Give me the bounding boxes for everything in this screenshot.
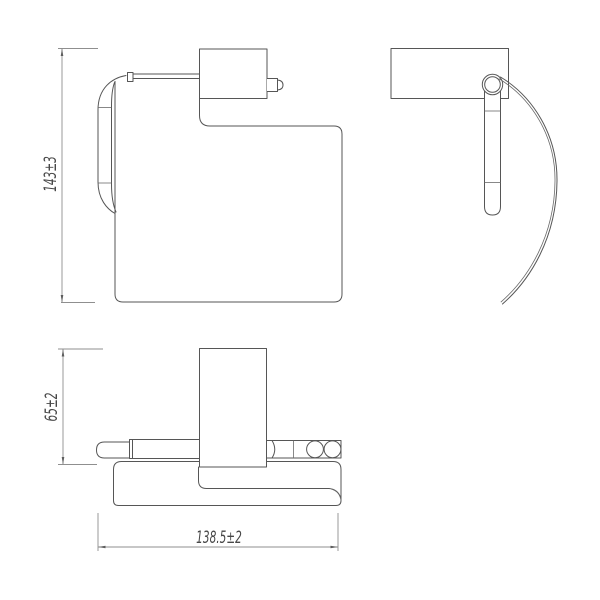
dimension-front-height: 143±3	[42, 49, 98, 303]
spindle-knob-cap	[278, 80, 284, 90]
dimension-top-depth: 65±2	[43, 349, 103, 465]
top-view: 65±2 138.5±2	[43, 349, 341, 552]
technical-drawing: 143±3	[0, 0, 600, 600]
rod-body-right	[267, 441, 342, 459]
dimension-label-height: 143±3	[42, 156, 61, 192]
dimension-label-depth: 65±2	[43, 393, 62, 422]
mount-block-front	[200, 49, 268, 99]
arrowhead-left	[98, 546, 106, 549]
cover-profile-inner	[499, 79, 555, 303]
base-plate-top	[114, 462, 342, 506]
side-view	[391, 49, 557, 305]
arrowhead-up	[62, 349, 65, 357]
arrowhead-down	[61, 295, 64, 303]
arrowhead-down	[62, 457, 65, 465]
rod-left-cap	[97, 442, 133, 458]
spindle-knob	[267, 79, 278, 92]
rod-end-cap	[128, 73, 134, 82]
rod-body-left	[133, 440, 200, 459]
mount-block-top	[200, 349, 267, 468]
roller-rod	[133, 74, 200, 79]
front-view: 143±3	[42, 49, 342, 303]
technical-drawing-page: 143±3	[0, 0, 600, 600]
holder-arm-side	[485, 88, 501, 215]
rod-joint	[130, 440, 133, 459]
cover-front	[115, 81, 342, 302]
hinge-circle-outer	[482, 74, 502, 94]
dimension-overall-width: 138.5±2	[98, 513, 338, 551]
dimension-label-width: 138.5±2	[196, 529, 242, 548]
arrowhead-up	[61, 49, 64, 57]
arrowhead-right	[331, 546, 339, 549]
